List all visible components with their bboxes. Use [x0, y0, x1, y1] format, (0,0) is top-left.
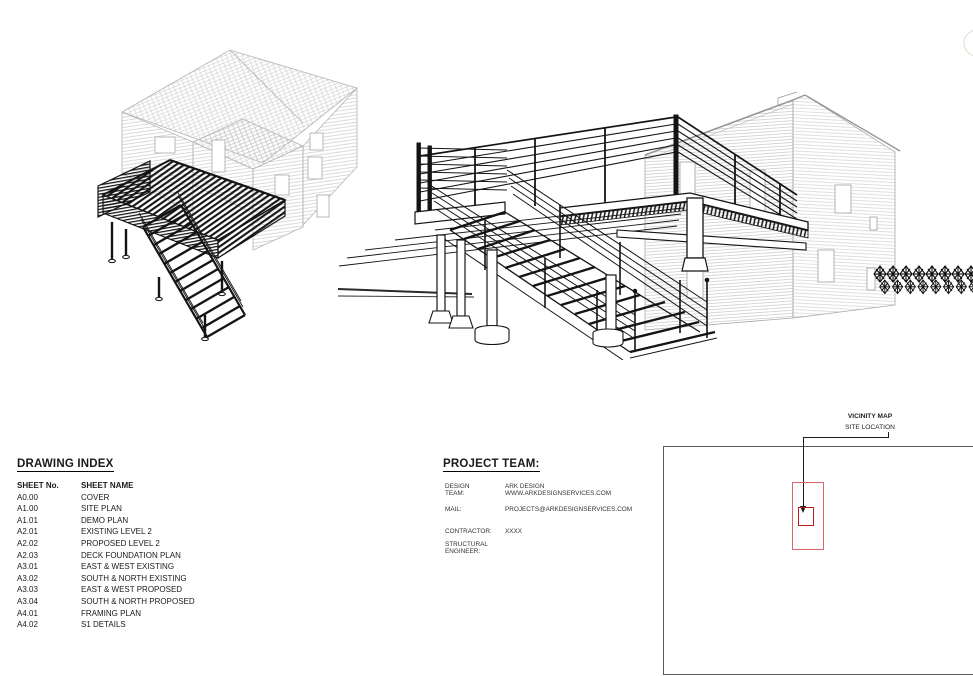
- site-marker-inner: [798, 507, 814, 526]
- drawing-index-table: SHEET No.SHEET NAME A0.00COVER A1.00SITE…: [17, 480, 195, 631]
- table-row: A2.02PROPOSED LEVEL 2: [17, 538, 195, 550]
- site-location-label: SITE LOCATION: [822, 423, 918, 434]
- drawing-index: DRAWING INDEX SHEET No.SHEET NAME A0.00C…: [17, 454, 195, 631]
- site-leader-tick: [888, 432, 889, 438]
- page-edge-bubble-icon: [963, 26, 973, 60]
- support-columns: [429, 235, 623, 347]
- table-row: A1.01DEMO PLAN: [17, 515, 195, 527]
- table-row: A3.04SOUTH & NORTH PROPOSED: [17, 596, 195, 608]
- table-row: A3.02SOUTH & NORTH EXISTING: [17, 573, 195, 585]
- vicinity-map-caption: VICINITY MAP SITE LOCATION: [822, 412, 918, 433]
- project-team-title: PROJECT TEAM:: [443, 458, 540, 472]
- column-sheet-no: SHEET No.: [17, 480, 81, 492]
- ground-line: [338, 289, 474, 297]
- table-row: A1.00SITE PLAN: [17, 503, 195, 515]
- table-row: A2.01EXISTING LEVEL 2: [17, 526, 195, 538]
- vicinity-map-title: VICINITY MAP: [822, 412, 918, 423]
- table-row: A3.03EAST & WEST PROPOSED: [17, 584, 195, 596]
- table-row: A4.02S1 DETAILS: [17, 619, 195, 631]
- table-row: A0.00COVER: [17, 492, 195, 504]
- team-entry-design: DESIGN TEAM:ARK DESIGN WWW.ARKDESIGNSERV…: [445, 483, 611, 497]
- drawing-index-title: DRAWING INDEX: [17, 458, 114, 472]
- column-sheet-name: SHEET NAME: [81, 481, 133, 490]
- vicinity-map-box: [663, 446, 973, 675]
- drawing-index-header: SHEET No.SHEET NAME: [17, 480, 195, 492]
- team-entry-contractor: CONTRACTOR:XXXX: [445, 528, 522, 535]
- table-row: A3.01EAST & WEST EXISTING: [17, 561, 195, 573]
- illustration-deck-stair-detail: [335, 90, 973, 360]
- team-entry-structural: STRUCTURAL ENGINEER:: [445, 541, 505, 555]
- table-row: A2.03DECK FOUNDATION PLAN: [17, 550, 195, 562]
- cover-sheet: { "sheet": { "type": "architectural-cove…: [0, 0, 973, 676]
- site-leader-line: [803, 437, 889, 438]
- table-row: A4.01FRAMING PLAN: [17, 608, 195, 620]
- project-team: PROJECT TEAM: DESIGN TEAM:ARK DESIGN WWW…: [443, 454, 693, 472]
- team-entry-mail: MAIL:PROJECTS@ARKDESIGNSERVICES.COM: [445, 506, 632, 513]
